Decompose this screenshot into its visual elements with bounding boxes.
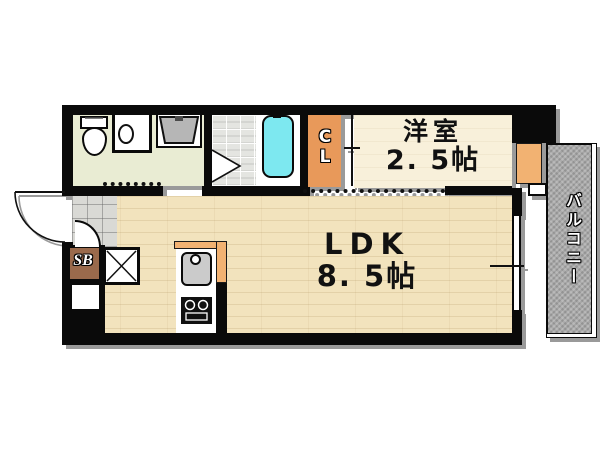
shower-door bbox=[212, 150, 240, 182]
western-room-size: 2. 5帖 bbox=[354, 146, 512, 176]
ldk-label: LDK bbox=[253, 228, 481, 260]
stove-burner-right bbox=[199, 301, 208, 310]
stove-burner-left bbox=[186, 301, 195, 310]
ldk-size: 8. 5帖 bbox=[253, 260, 481, 292]
plan-line-details bbox=[0, 0, 600, 450]
washbasin-bowl bbox=[119, 125, 133, 143]
floor-plan-drawing: バルコニー CL bbox=[0, 0, 600, 450]
bathtub-faucet bbox=[273, 114, 281, 118]
washing-machine-drain bbox=[175, 116, 183, 121]
stove-grill bbox=[186, 313, 207, 320]
entrance-door-swing bbox=[15, 192, 65, 242]
refrigerator-space-cross bbox=[107, 251, 136, 281]
western-room-label-group: 洋室 2. 5帖 bbox=[354, 118, 512, 176]
floor-plan: バルコニー CL bbox=[0, 0, 600, 450]
western-room-label: 洋室 bbox=[354, 118, 512, 146]
ldk-label-group: LDK 8. 5帖 bbox=[253, 228, 481, 293]
